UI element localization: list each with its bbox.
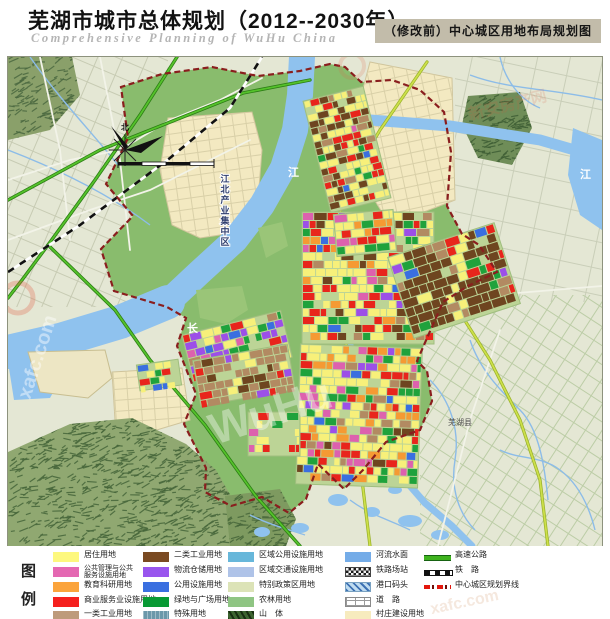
legend-swatch	[53, 552, 79, 562]
parcel-cluster-wanchun	[333, 209, 396, 256]
legend-swatch	[228, 597, 254, 607]
north-label: 北	[121, 122, 129, 132]
river-label-jiang-east: 江	[580, 167, 591, 181]
page: 芜湖市城市总体规划（2012--2030年） Comprehensive Pla…	[0, 0, 610, 619]
zone-label-jiangbei: 江北产业集中区	[219, 173, 230, 247]
legend-panel: 图 例 居住用地公共管理与公共 服务设施用地教育科研用地商业服务业设施用地一类工…	[0, 546, 610, 619]
legend-swatch	[424, 585, 451, 589]
legend-swatch	[53, 597, 79, 607]
legend-swatch	[143, 552, 169, 562]
river-label-chang: 长	[187, 321, 199, 335]
legend-swatch	[143, 611, 169, 619]
legend-swatch	[143, 567, 169, 577]
legend-swatch	[228, 567, 254, 577]
legend-label: 铁 路	[455, 566, 575, 574]
legend-swatch	[345, 582, 371, 592]
legend-swatch	[345, 567, 371, 577]
page-subtitle: Comprehensive Planning of WuHu China	[31, 31, 338, 46]
legend-swatch	[143, 582, 169, 592]
map-sheet-label: （修改前）中心城区用地布局规划图	[375, 19, 601, 43]
legend-swatch	[53, 582, 79, 592]
legend-swatch	[228, 611, 254, 619]
legend-title-top: 图	[21, 560, 36, 581]
legend-swatch	[228, 552, 254, 562]
legend-swatch	[345, 597, 371, 607]
legend-swatch	[228, 582, 254, 592]
legend-swatch	[345, 552, 371, 562]
planning-map: 北 长 江 江 江北产业集中区 芜湖县 WuHu xafc.com 新安房产网	[8, 57, 602, 546]
legend-swatch	[143, 597, 169, 607]
legend-swatch	[53, 567, 79, 577]
legend-label: 高速公路	[455, 551, 575, 559]
map-canvas[interactable]: 北 长 江 江 江北产业集中区 芜湖县 WuHu xafc.com 新安房产网	[8, 57, 602, 546]
legend-label: 中心城区规划界线	[455, 581, 575, 589]
legend-swatch	[424, 555, 451, 561]
legend-title-bottom: 例	[21, 588, 36, 609]
legend-swatch	[424, 570, 453, 576]
legend-swatch	[345, 611, 371, 619]
district-label-county: 芜湖县	[448, 417, 472, 427]
legend-swatch	[53, 611, 79, 619]
parcel-cluster-westbank-small	[136, 359, 181, 393]
river-label-jiang: 江	[288, 165, 299, 179]
